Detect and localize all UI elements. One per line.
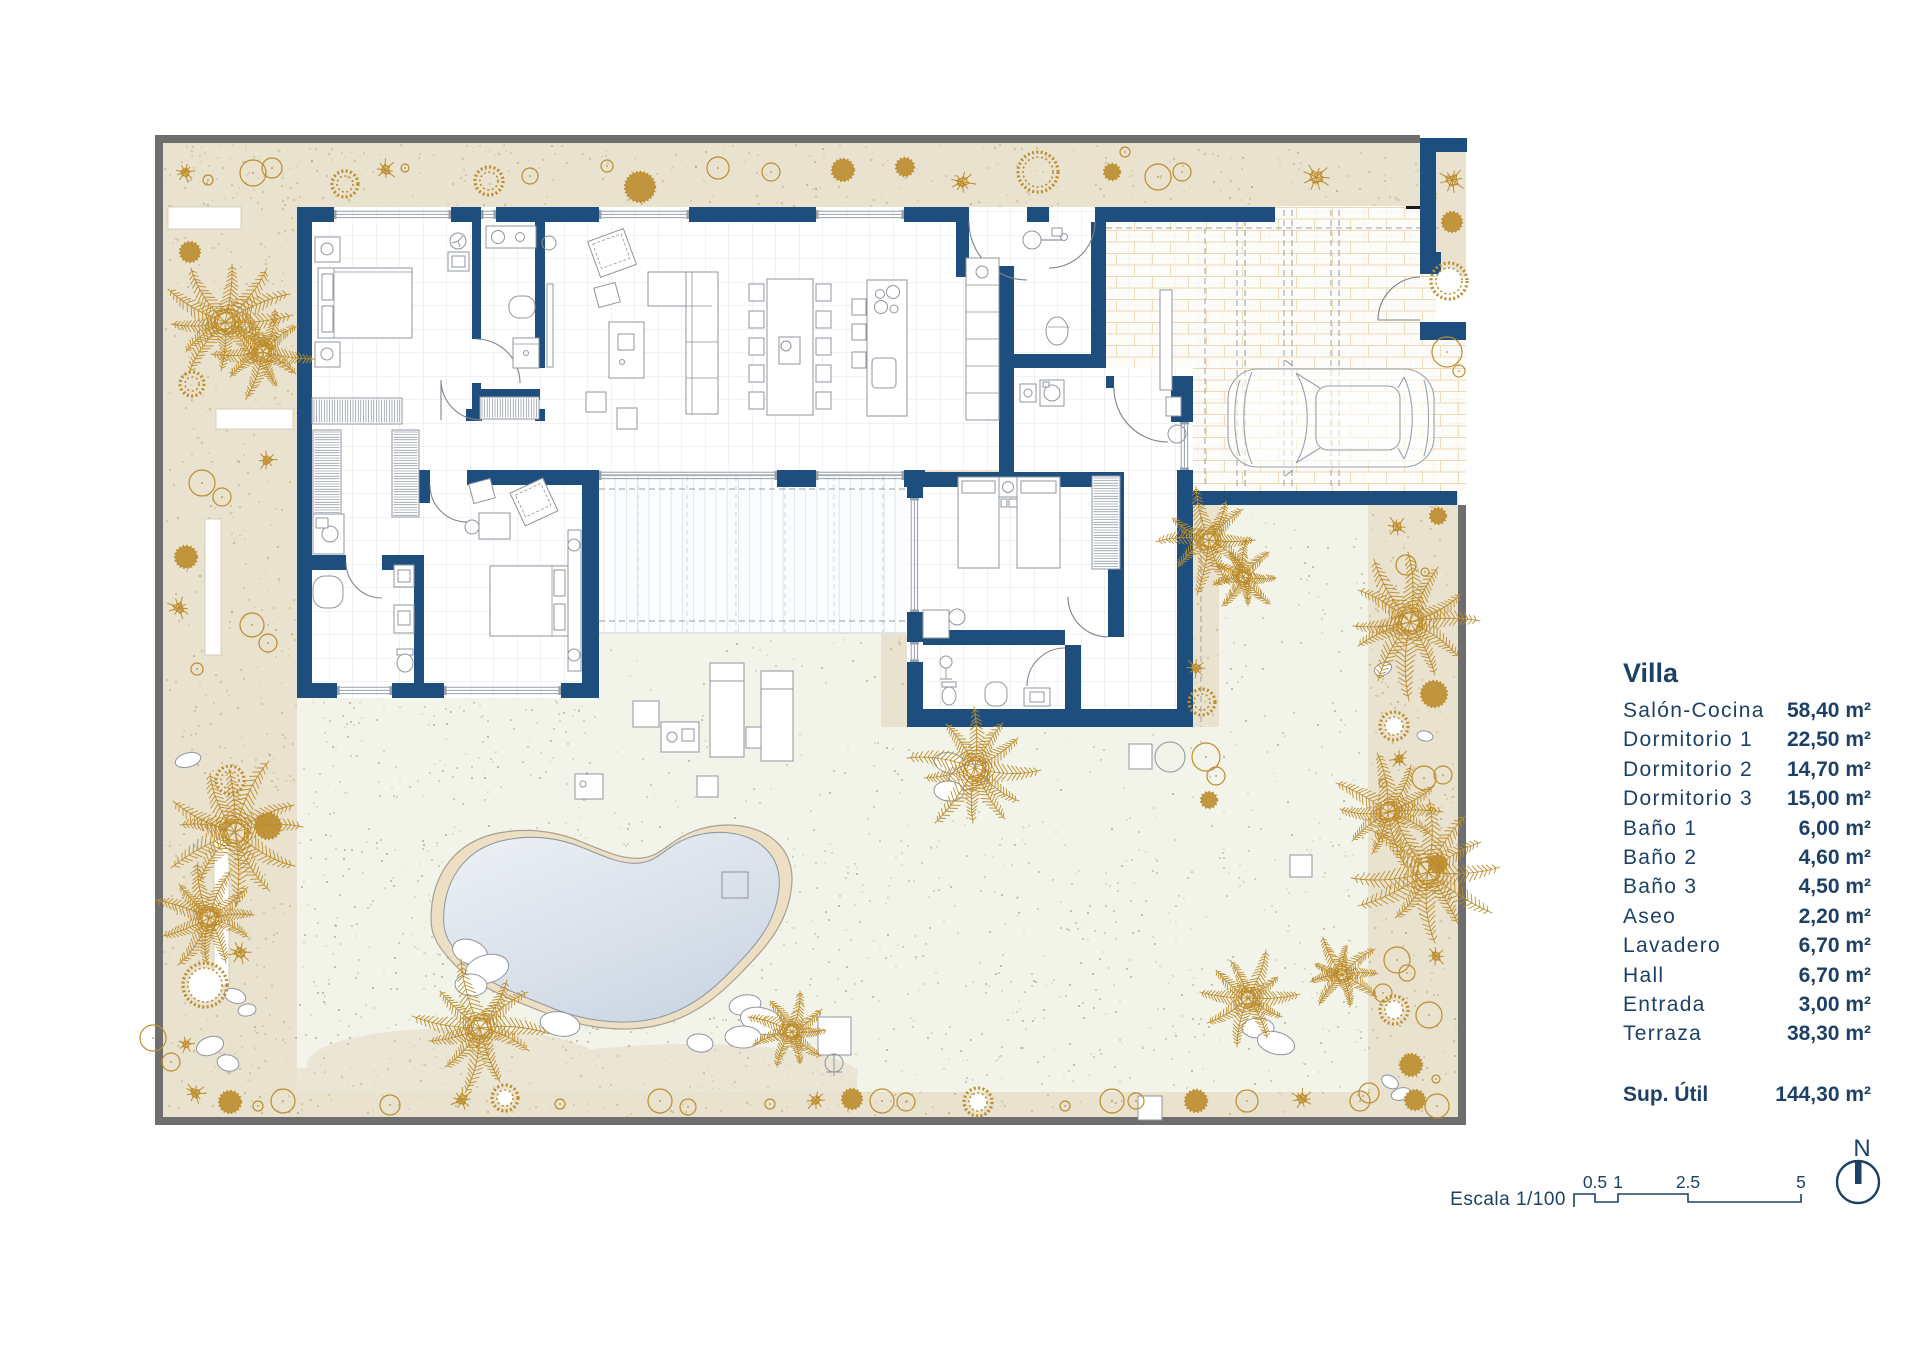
svg-text:Hall: Hall bbox=[1623, 964, 1664, 987]
svg-text:2.5: 2.5 bbox=[1676, 1172, 1700, 1192]
svg-text:4,60 m²: 4,60 m² bbox=[1799, 846, 1871, 869]
svg-text:144,30 m²: 144,30 m² bbox=[1775, 1083, 1871, 1106]
svg-text:3,00 m²: 3,00 m² bbox=[1799, 993, 1871, 1016]
svg-text:6,70 m²: 6,70 m² bbox=[1799, 964, 1871, 987]
svg-text:38,30 m²: 38,30 m² bbox=[1787, 1022, 1871, 1045]
svg-text:N: N bbox=[1853, 1135, 1870, 1162]
svg-text:4,50 m²: 4,50 m² bbox=[1799, 875, 1871, 898]
svg-text:Escala 1/100: Escala 1/100 bbox=[1450, 1189, 1566, 1210]
svg-text:Villa: Villa bbox=[1623, 658, 1679, 688]
svg-text:22,50 m²: 22,50 m² bbox=[1787, 728, 1871, 751]
svg-text:Terraza: Terraza bbox=[1623, 1022, 1702, 1045]
svg-text:58,40 m²: 58,40 m² bbox=[1787, 699, 1871, 722]
svg-text:5: 5 bbox=[1796, 1172, 1806, 1192]
svg-text:Aseo: Aseo bbox=[1623, 905, 1676, 928]
svg-text:Dormitorio 3: Dormitorio 3 bbox=[1623, 787, 1753, 810]
svg-text:15,00 m²: 15,00 m² bbox=[1787, 787, 1871, 810]
svg-text:Baño 2: Baño 2 bbox=[1623, 846, 1697, 869]
svg-text:1: 1 bbox=[1613, 1172, 1623, 1192]
svg-text:0.5: 0.5 bbox=[1583, 1172, 1607, 1192]
svg-text:Dormitorio 1: Dormitorio 1 bbox=[1623, 728, 1753, 751]
svg-text:2,20 m²: 2,20 m² bbox=[1799, 905, 1871, 928]
svg-text:Lavadero: Lavadero bbox=[1623, 934, 1721, 957]
svg-text:6,70 m²: 6,70 m² bbox=[1799, 934, 1871, 957]
svg-text:14,70 m²: 14,70 m² bbox=[1787, 758, 1871, 781]
svg-text:Sup. Útil: Sup. Útil bbox=[1623, 1082, 1708, 1106]
svg-text:Baño 1: Baño 1 bbox=[1623, 817, 1697, 840]
svg-text:6,00 m²: 6,00 m² bbox=[1799, 817, 1871, 840]
svg-text:Baño 3: Baño 3 bbox=[1623, 875, 1697, 898]
svg-text:Dormitorio 2: Dormitorio 2 bbox=[1623, 758, 1753, 781]
svg-text:Entrada: Entrada bbox=[1623, 993, 1706, 1016]
svg-text:Salón-Cocina: Salón-Cocina bbox=[1623, 699, 1765, 722]
